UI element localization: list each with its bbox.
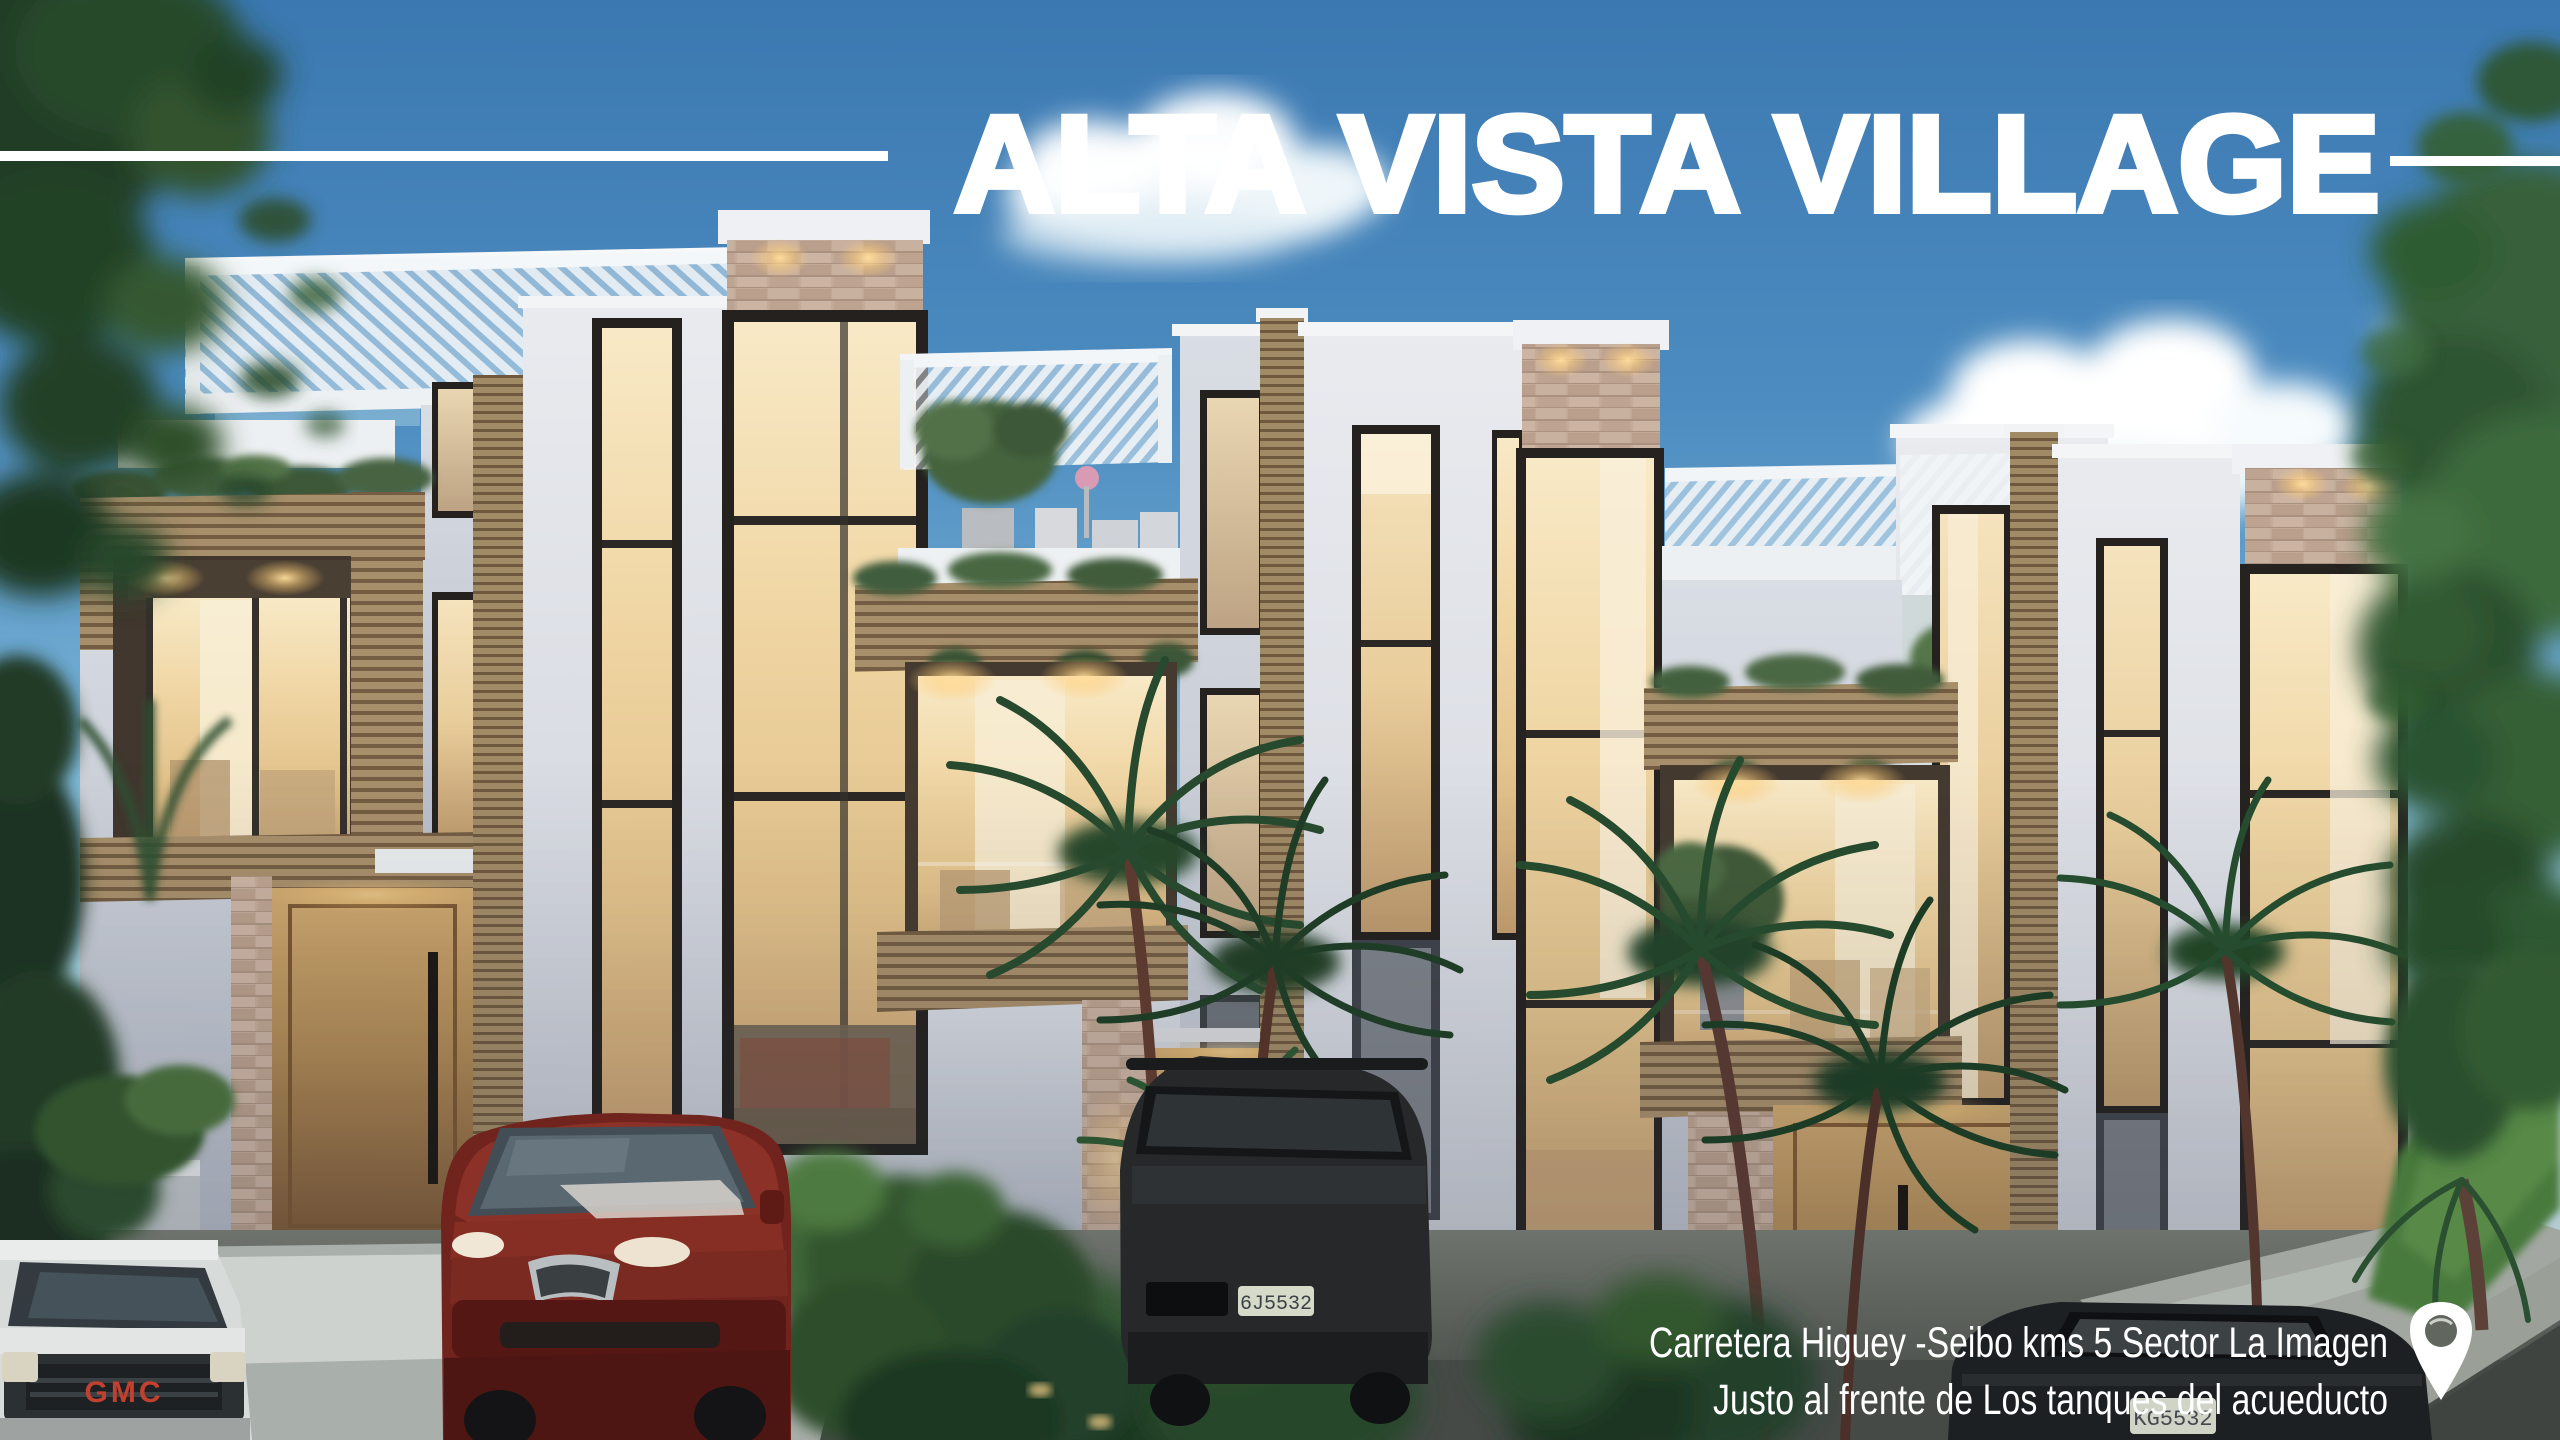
svg-text:ALTA VISTA VILLAGE: ALTA VISTA VILLAGE: [954, 88, 2380, 241]
svg-text:Carretera Higuey -Seibo kms 5: Carretera Higuey -Seibo kms 5 Sector La …: [1649, 1319, 2388, 1367]
svg-text:Justo al frente de Los tanques: Justo al frente de Los tanques del acued…: [1713, 1376, 2388, 1424]
svg-text:6J5532: 6J5532: [1240, 1293, 1312, 1316]
svg-text:GMC: GMC: [85, 1376, 164, 1409]
